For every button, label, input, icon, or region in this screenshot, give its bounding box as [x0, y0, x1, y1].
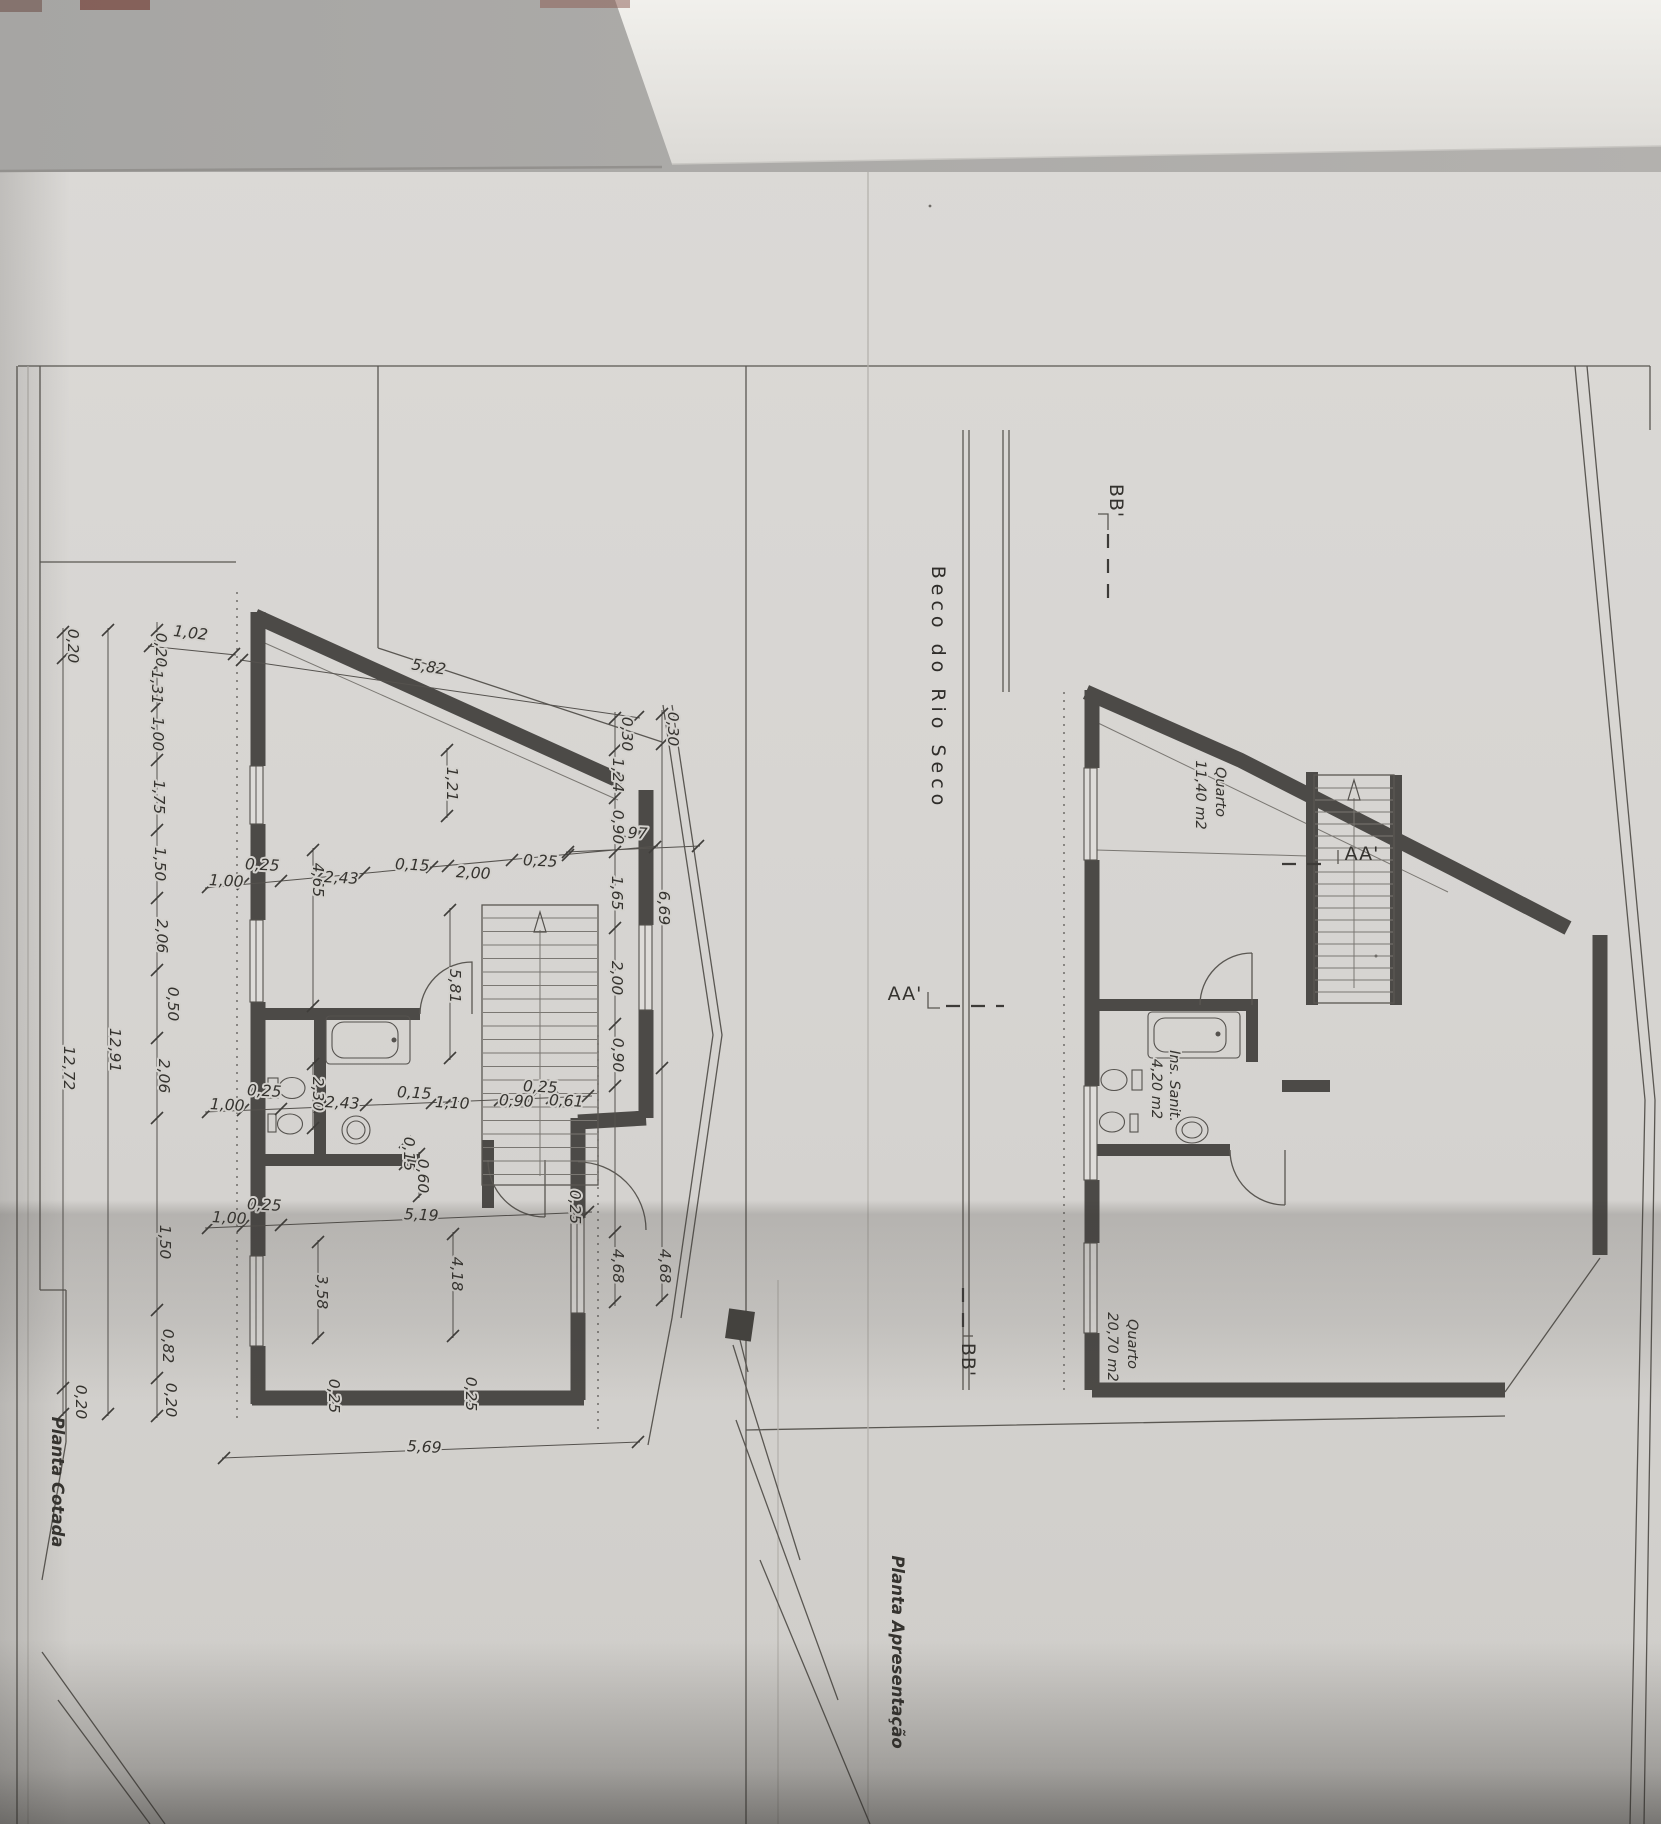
dimension-label: 1,50 — [151, 847, 169, 882]
section-marker-bb-top: BB' — [1105, 484, 1127, 518]
photo-edge-artifact — [0, 0, 42, 12]
dimension-label: 1,00 — [209, 871, 245, 891]
fold-shadow-band — [0, 1200, 1661, 1405]
dimension-label: 0,50 — [164, 987, 182, 1022]
dimension-label: 0,60 — [414, 1159, 432, 1194]
floor-plan-drawing: 1,025,820,2012,720,2012,910,201,311,001,… — [0, 0, 1661, 1824]
dimension-label: 0,20 — [152, 633, 170, 668]
dimension-label: 1,65 — [608, 876, 626, 911]
paper-sheet — [0, 140, 1661, 1824]
room-label: 4,20 m2 — [1148, 1059, 1164, 1119]
dimension-label: 2,06 — [155, 1059, 173, 1094]
dimension-label: 0,61 — [549, 1091, 584, 1111]
dimension-label: 2,06 — [153, 919, 171, 954]
dimension-label: 0,30 — [618, 717, 636, 752]
dimension-label: 0,90 — [609, 810, 627, 845]
photographed-floor-plan-sheet: 1,025,820,2012,720,2012,910,201,311,001,… — [0, 0, 1661, 1824]
left-edge-shadow — [0, 170, 70, 1824]
dimension-label: 0,30 — [664, 712, 682, 747]
dimension-label: 0,90 — [609, 1038, 627, 1073]
dimension-label: 0,25 — [245, 855, 280, 875]
dimension-label: 0,25 — [247, 1081, 282, 1101]
top-strip — [0, 0, 1661, 172]
section-marker-aa-left: AA' — [888, 983, 923, 1005]
dimension-label: 0,15 — [395, 855, 430, 875]
dimension-label: 1,31 — [148, 670, 166, 705]
dimension-label: 1,00 — [149, 717, 167, 752]
photo-edge-artifact — [80, 0, 150, 10]
dimension-label: 0,25 — [523, 851, 558, 871]
dimension-label: 1,75 — [150, 780, 168, 815]
dimension-label: 1,10 — [435, 1093, 471, 1113]
dimension-label: 1,24 — [609, 758, 627, 793]
dimension-label: 1,00 — [210, 1095, 246, 1115]
dimension-label: 2,00 — [456, 863, 492, 883]
dimension-label: 2,43 — [325, 1093, 360, 1113]
photo-edge-artifact — [540, 0, 630, 8]
room-label: Ins. Sanit. — [1166, 1050, 1182, 1122]
dimension-label: 12,91 — [106, 1028, 124, 1072]
dimension-label: 1,21 — [443, 767, 461, 802]
section-marker-aa-right: AA' — [1345, 843, 1380, 865]
dimension-label: 5,69 — [407, 1437, 442, 1457]
bottom-shadow — [0, 1640, 1661, 1824]
dimension-label: 2,43 — [324, 868, 359, 888]
top-strip-light — [615, 0, 1661, 164]
room-label: 11,40 m2 — [1192, 760, 1208, 829]
dimension-label: 0,15 — [397, 1083, 432, 1103]
dimension-label: 6,69 — [655, 891, 673, 926]
dimension-label: 2,00 — [608, 961, 626, 996]
room-label: Quarto — [1212, 767, 1228, 817]
dimension-label: 5,81 — [446, 969, 464, 1004]
street-name-label: Beco do Rio Seco — [927, 566, 949, 811]
